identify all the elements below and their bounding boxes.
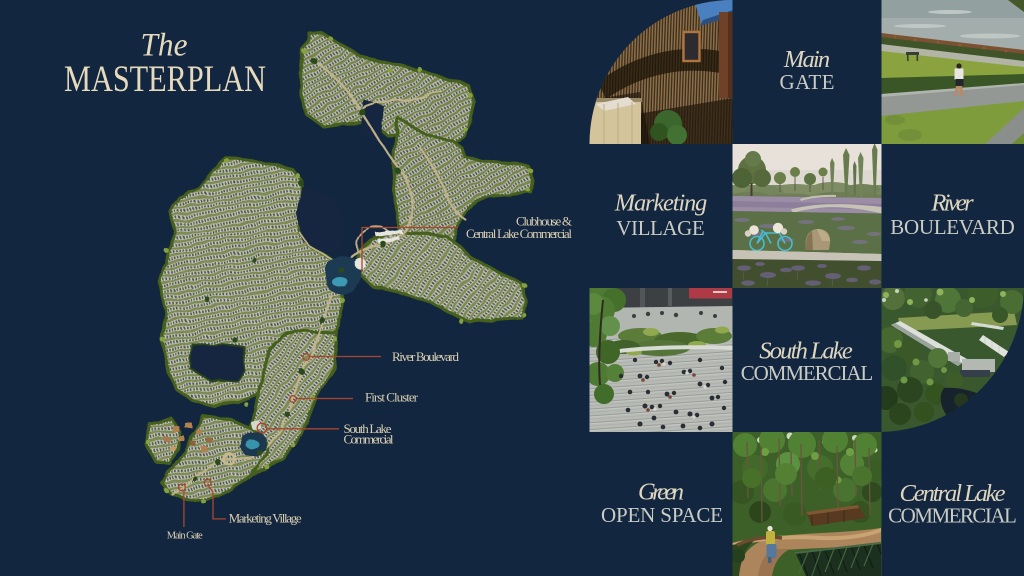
- svg-text:Commercial: Commercial: [344, 432, 394, 447]
- svg-text:River: River: [930, 189, 974, 216]
- svg-text:VILLAGE: VILLAGE: [616, 216, 705, 240]
- svg-text:Green: Green: [638, 479, 684, 506]
- svg-text:OPEN SPACE: OPEN SPACE: [601, 503, 723, 527]
- svg-text:River Boulevard: River Boulevard: [392, 349, 460, 364]
- svg-text:Central Lake Commercial: Central Lake Commercial: [466, 226, 572, 241]
- svg-text:MASTERPLAN: MASTERPLAN: [64, 59, 266, 100]
- svg-text:Main Gate: Main Gate: [167, 531, 203, 542]
- svg-text:First Cluster: First Cluster: [365, 390, 419, 405]
- svg-text:BOULEVARD: BOULEVARD: [890, 215, 1015, 239]
- svg-text:Marketing: Marketing: [614, 190, 708, 217]
- svg-text:COMMERCIAL: COMMERCIAL: [741, 361, 874, 385]
- svg-text:GATE: GATE: [780, 70, 835, 94]
- svg-text:COMMERCIAL: COMMERCIAL: [888, 504, 1017, 528]
- svg-text:Marketing Village: Marketing Village: [229, 511, 302, 526]
